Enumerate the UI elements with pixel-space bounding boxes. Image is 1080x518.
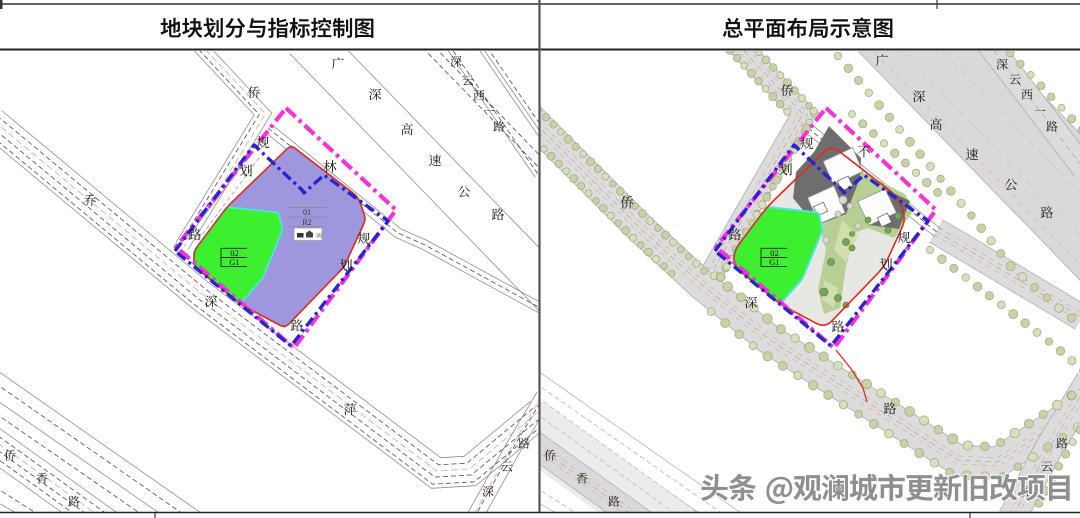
svg-text:35: 35 <box>316 234 322 240</box>
svg-text:R2: R2 <box>302 218 311 227</box>
svg-text:G1: G1 <box>769 257 779 267</box>
svg-text:G1: G1 <box>229 257 239 267</box>
svg-text:01: 01 <box>303 208 311 217</box>
